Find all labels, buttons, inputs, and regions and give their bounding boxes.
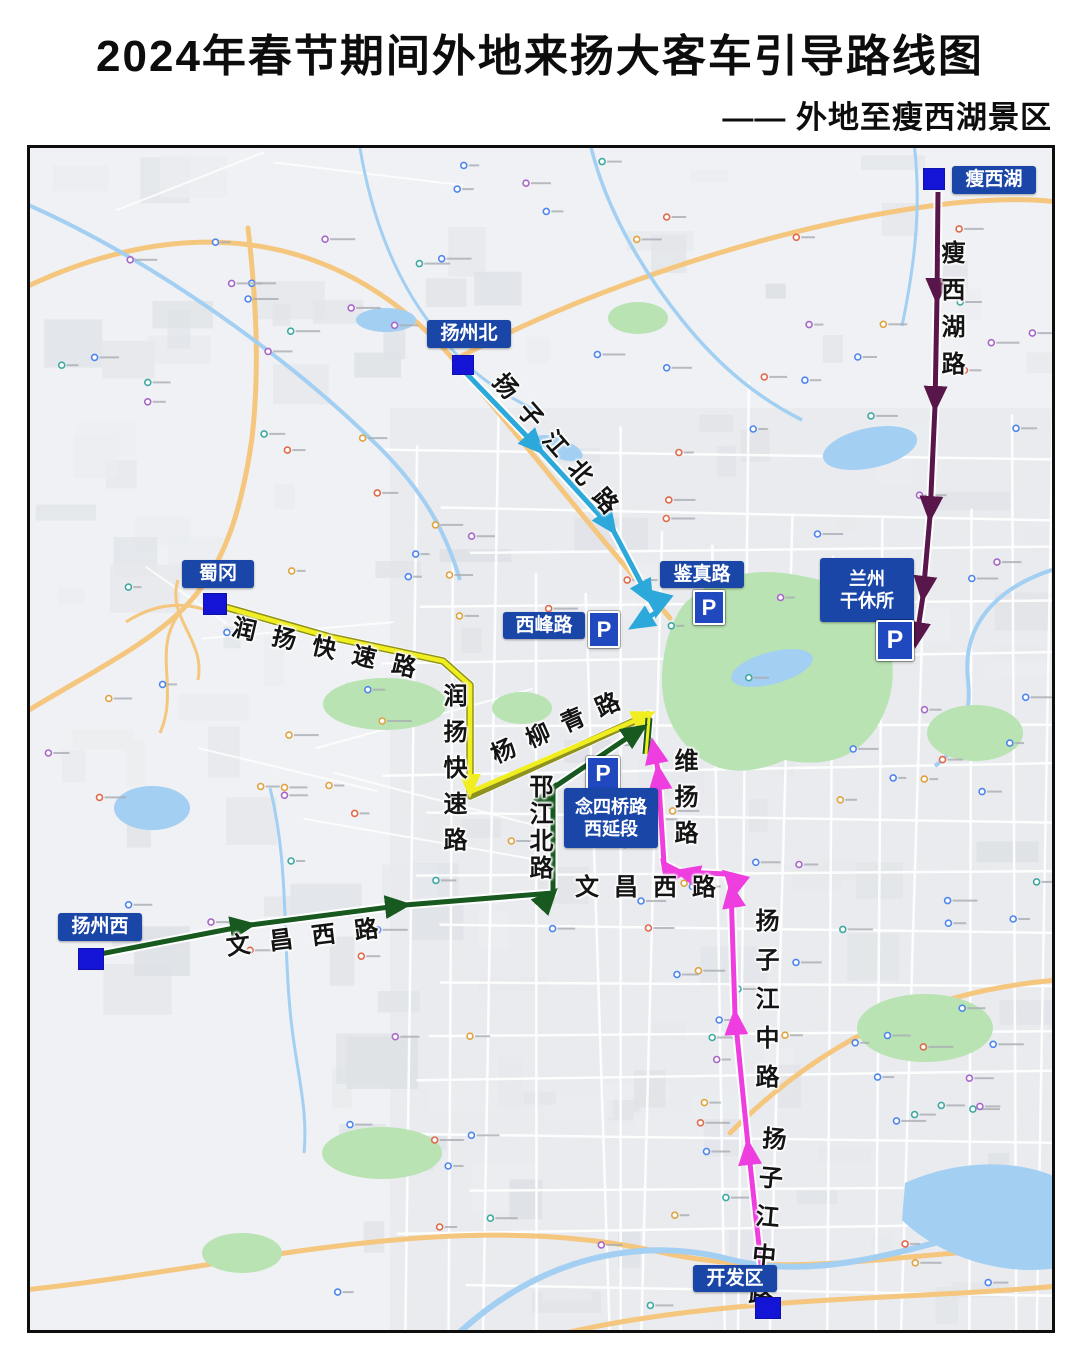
parking-label-jianzhenlu: 鉴真路 — [660, 561, 744, 588]
parking-label-lanzhou-line1: 兰州 — [849, 568, 885, 591]
toll-square-kaifaqu — [755, 1297, 781, 1319]
toll-label-kaifaqu-text: 开发区 — [706, 1267, 763, 1291]
parking-label-lanzhou: 兰州 干休所 — [820, 558, 914, 622]
p-letter: P — [595, 760, 610, 787]
toll-label-shouxihu: 瘦西湖 — [952, 166, 1036, 194]
parking-marker-niansiqiao: P — [586, 756, 620, 791]
road-label-weiyanglu: 维扬路 — [671, 748, 695, 856]
parking-marker-lanzhou: P — [876, 620, 914, 661]
parking-label-niansiqiao: 念四桥路 西延段 — [564, 788, 658, 848]
parking-label-xifenglu-text: 西峰路 — [515, 614, 572, 638]
route-map-panel: 瘦西湖路 扬子江北路 润扬快速路 润扬快速路 杨柳青路 邗江北路 维扬路 文昌西… — [27, 145, 1055, 1333]
toll-label-shugang-text: 蜀冈 — [199, 562, 237, 586]
toll-label-shouxihu-text: 瘦西湖 — [965, 168, 1022, 192]
p-letter: P — [702, 595, 717, 621]
road-label-wenchang-xilu-e: 文昌西路 — [575, 876, 731, 900]
road-label-yangzijiang-zhonglu-n: 扬子江中路 — [752, 908, 776, 1103]
route-yangzhoubei — [465, 372, 657, 626]
p-letter: P — [887, 626, 904, 655]
parking-label-jianzhenlu-text: 鉴真路 — [673, 563, 730, 587]
parking-marker-xifenglu: P — [588, 611, 620, 648]
page-subtitle: —— 外地至瘦西湖景区 — [722, 92, 1052, 137]
toll-label-yangzhoubei: 扬州北 — [427, 320, 511, 348]
toll-square-shugang — [203, 593, 227, 615]
toll-label-yangzhouxi: 扬州西 — [58, 913, 142, 941]
toll-label-shugang: 蜀冈 — [182, 560, 254, 588]
toll-label-yangzhoubei-text: 扬州北 — [440, 322, 497, 346]
page-title: 2024年春节期间外地来扬大客车引导路线图 — [0, 20, 1080, 84]
parking-label-niansiqiao-line2: 西延段 — [584, 818, 638, 841]
road-label-shouxihulu: 瘦西湖路 — [938, 240, 962, 388]
toll-label-kaifaqu: 开发区 — [693, 1265, 777, 1292]
road-label-hanjiang-beilu: 邗江北路 — [526, 774, 550, 882]
route-shouxihu — [916, 192, 938, 642]
p-letter: P — [597, 617, 612, 643]
road-label-runyang-kuaisulu-v: 润扬快速路 — [440, 683, 464, 863]
toll-square-yangzhoubei — [452, 355, 474, 375]
parking-marker-jianzhenlu: P — [693, 590, 725, 625]
toll-square-shouxihu — [923, 168, 945, 190]
parking-label-niansiqiao-line1: 念四桥路 — [575, 796, 647, 819]
parking-label-lanzhou-line2: 干休所 — [840, 590, 894, 613]
toll-label-yangzhouxi-text: 扬州西 — [71, 915, 128, 939]
parking-label-xifenglu: 西峰路 — [503, 612, 585, 639]
toll-square-yangzhouxi — [78, 948, 104, 970]
